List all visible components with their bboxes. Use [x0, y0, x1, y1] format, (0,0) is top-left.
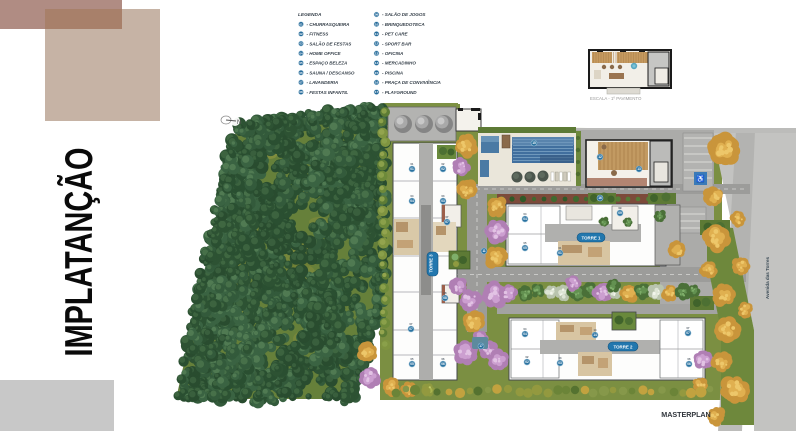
svg-text:13: 13: [375, 51, 379, 55]
svg-text:- HOME OFFICE: - HOME OFFICE: [307, 51, 342, 56]
svg-text:- CHURRASQUEIRA: - CHURRASQUEIRA: [307, 22, 350, 27]
svg-text:05: 05: [299, 61, 303, 65]
svg-text:- OFICINA: - OFICINA: [382, 51, 403, 56]
svg-text:08: 08: [299, 90, 303, 94]
svg-text:- SAUNA / DESCANSO: - SAUNA / DESCANSO: [307, 70, 355, 75]
svg-text:04: 04: [299, 51, 303, 55]
svg-text:- PET CARE: - PET CARE: [382, 32, 409, 37]
svg-text:- PISCINA: - PISCINA: [382, 70, 403, 75]
svg-text:- SALÃO DE JOGOS: - SALÃO DE JOGOS: [382, 11, 426, 17]
svg-text:02: 02: [299, 32, 303, 36]
svg-text:03: 03: [299, 42, 303, 46]
svg-text:- BRINQUEDOTECA: - BRINQUEDOTECA: [382, 22, 425, 27]
svg-text:- LAVANDERIA: - LAVANDERIA: [307, 80, 339, 85]
svg-text:LEGENDA: LEGENDA: [298, 12, 322, 18]
svg-text:09: 09: [375, 13, 379, 17]
svg-text:14: 14: [375, 61, 379, 65]
svg-text:12: 12: [375, 42, 379, 46]
svg-text:01: 01: [299, 22, 303, 26]
svg-text:- SPORT BAR: - SPORT BAR: [382, 41, 412, 46]
svg-text:15: 15: [375, 71, 379, 75]
svg-text:- ESPAÇO BELEZA: - ESPAÇO BELEZA: [307, 61, 348, 66]
svg-text:- PRAÇA DE CONVIVÊNCIA: - PRAÇA DE CONVIVÊNCIA: [382, 78, 441, 85]
svg-text:N: N: [237, 120, 241, 126]
svg-text:16: 16: [375, 81, 379, 85]
svg-text:Avenida das Torres: Avenida das Torres: [765, 256, 770, 299]
svg-text:07: 07: [299, 81, 303, 85]
svg-text:11: 11: [375, 32, 379, 36]
svg-text:- SALÃO DE FESTAS: - SALÃO DE FESTAS: [307, 40, 353, 46]
svg-text:IMPLATANÇÃO: IMPLATANÇÃO: [57, 148, 101, 357]
svg-text:- FITNESS: - FITNESS: [307, 32, 330, 37]
svg-text:06: 06: [299, 71, 303, 75]
svg-text:- MERCADINHO: - MERCADINHO: [382, 61, 416, 66]
svg-text:- FESTAS INFANTIL: - FESTAS INFANTIL: [307, 90, 349, 95]
svg-text:10: 10: [375, 22, 379, 26]
svg-text:17: 17: [375, 90, 379, 94]
svg-text:- PLAYGROUND: - PLAYGROUND: [382, 90, 417, 95]
